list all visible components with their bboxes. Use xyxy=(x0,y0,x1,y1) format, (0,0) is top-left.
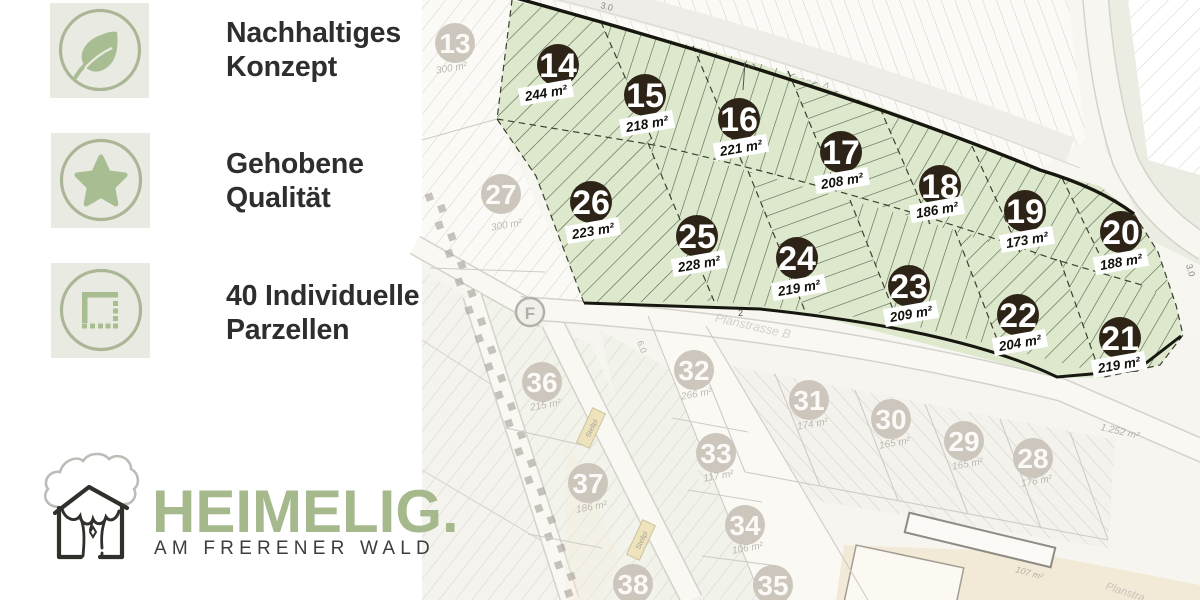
svg-text:23: 23 xyxy=(890,268,928,306)
svg-text:34: 34 xyxy=(729,510,761,541)
svg-text:14: 14 xyxy=(539,47,577,85)
svg-text:32: 32 xyxy=(678,355,709,386)
svg-text:F: F xyxy=(525,304,535,323)
svg-text:AM FRERENER WALD: AM FRERENER WALD xyxy=(154,538,435,559)
svg-text:37: 37 xyxy=(572,468,603,499)
svg-text:21: 21 xyxy=(1101,320,1139,358)
svg-text:31: 31 xyxy=(793,385,824,416)
svg-text:38: 38 xyxy=(617,569,648,600)
svg-text:29: 29 xyxy=(948,426,979,457)
svg-text:33: 33 xyxy=(700,438,731,469)
svg-text:13: 13 xyxy=(439,28,470,59)
svg-text:36: 36 xyxy=(526,367,557,398)
svg-text:26: 26 xyxy=(572,184,610,222)
svg-text:20: 20 xyxy=(1102,214,1140,252)
svg-text:19: 19 xyxy=(1006,193,1044,231)
svg-text:28: 28 xyxy=(1017,443,1048,474)
svg-text:15: 15 xyxy=(626,77,664,115)
svg-text:22: 22 xyxy=(999,297,1037,335)
svg-text:30: 30 xyxy=(875,404,906,435)
svg-text:17: 17 xyxy=(822,134,860,172)
svg-text:24: 24 xyxy=(778,240,816,278)
svg-text:35: 35 xyxy=(757,570,788,600)
svg-text:27: 27 xyxy=(485,179,516,210)
svg-text:2: 2 xyxy=(738,308,743,318)
svg-text:HEIMELIG.: HEIMELIG. xyxy=(152,478,459,545)
svg-text:16: 16 xyxy=(720,101,758,139)
svg-text:25: 25 xyxy=(678,218,716,256)
